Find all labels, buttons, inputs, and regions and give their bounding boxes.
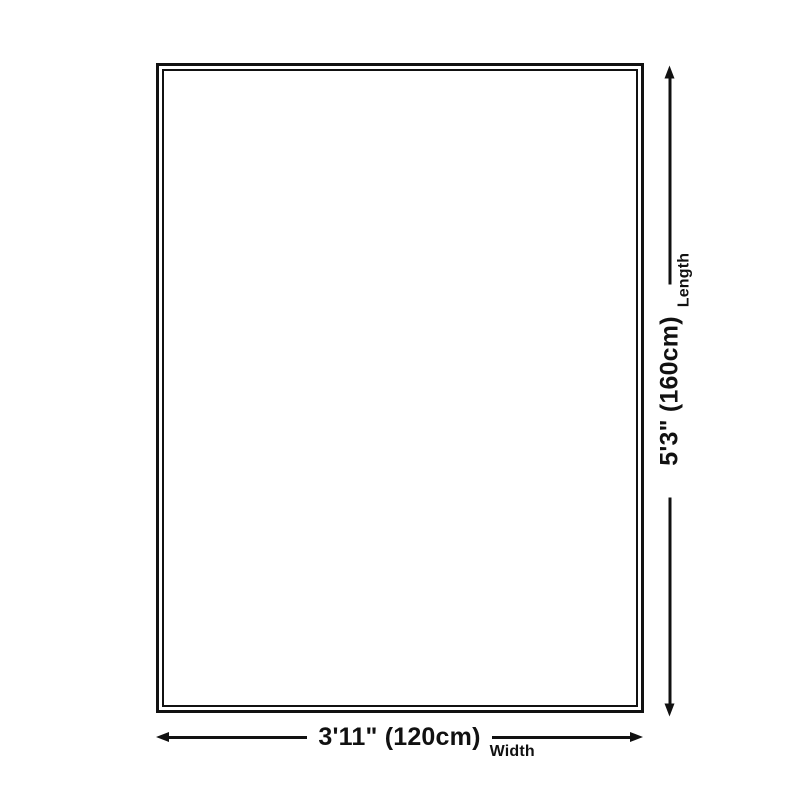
rug-outline-inner-border	[162, 69, 638, 707]
arrowhead-down-icon	[665, 704, 675, 717]
width-value-text: 3'11" (120cm)	[318, 723, 480, 751]
width-dimension-line-left	[169, 736, 307, 739]
width-label: Width	[490, 744, 535, 760]
length-dimension-line-lower	[668, 498, 671, 704]
arrowhead-up-icon	[665, 65, 675, 78]
arrowhead-left-icon	[156, 732, 169, 742]
length-label: Length	[677, 253, 693, 308]
width-value: 3'11" (120cm) Width	[318, 722, 480, 752]
rug-outline	[156, 63, 644, 713]
width-dimension-line-right	[492, 736, 630, 739]
arrowhead-right-icon	[630, 732, 643, 742]
size-diagram: 5'3" (160cm) Length 3'11" (120cm) Width	[0, 0, 800, 800]
length-dimension-line-upper	[668, 78, 671, 284]
length-dimension-arrow: 5'3" (160cm) Length	[652, 66, 688, 717]
length-value: 5'3" (160cm) Length	[655, 316, 685, 465]
length-value-text: 5'3" (160cm)	[656, 316, 684, 465]
width-dimension-arrow: 3'11" (120cm) Width	[156, 719, 643, 755]
